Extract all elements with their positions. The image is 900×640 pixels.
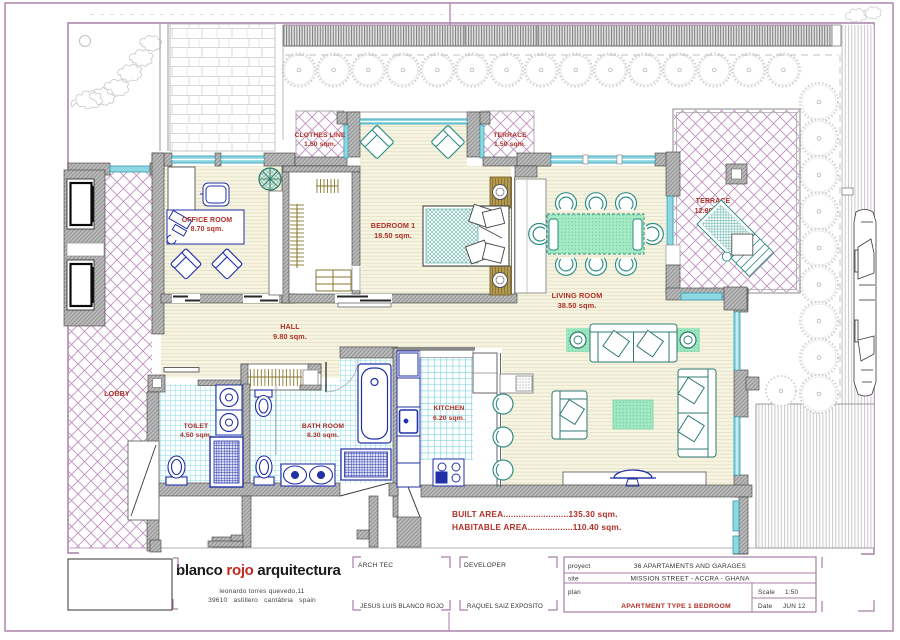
svg-text:BATH ROOM: BATH ROOM [302,423,345,430]
svg-text:JUN 12: JUN 12 [783,603,806,610]
svg-text:9.80 sqm.: 9.80 sqm. [273,332,307,341]
svg-text:18.50 sqm.: 18.50 sqm. [374,231,412,240]
svg-text:1.50 sqm.: 1.50 sqm. [304,141,336,148]
svg-text:leonardo torres quevedo,11: leonardo torres quevedo,11 [219,588,304,595]
svg-text:LIVING ROOM: LIVING ROOM [552,291,603,300]
svg-text:RAQUEL SAIZ EXPOSITO: RAQUEL SAIZ EXPOSITO [467,603,543,610]
svg-text:CLOTHES LINE: CLOTHES LINE [294,132,345,139]
svg-text:8.30 sqm.: 8.30 sqm. [307,432,339,439]
svg-text:1.50 sqm.: 1.50 sqm. [494,141,526,148]
svg-text:Date: Date [758,603,773,610]
svg-text:Scale: Scale [758,589,775,596]
svg-text:4.50 sqm.: 4.50 sqm. [180,432,212,439]
svg-text:BEDROOM 1: BEDROOM 1 [371,221,415,230]
svg-text:BUILT AREA....................: BUILT AREA..........................135.… [452,509,618,519]
svg-text:OFFICE ROOM: OFFICE ROOM [182,217,233,224]
svg-text:plan: plan [568,589,581,596]
svg-text:38.50 sqm.: 38.50 sqm. [558,301,597,310]
svg-text:6.20 sqm.: 6.20 sqm. [433,415,465,422]
svg-text:JESUS LUIS BLANCO ROJO: JESUS LUIS BLANCO ROJO [360,603,444,610]
svg-text:proyect: proyect [568,563,590,570]
svg-text:TOILET: TOILET [184,423,209,430]
svg-text:39610 astillero cantábria: 39610 astillero cantábria spain [208,597,316,604]
svg-text:KITCHEN: KITCHEN [434,405,465,412]
svg-text:TERRACE: TERRACE [493,132,527,139]
svg-text:MISSION STREET - ACCRA - GHANA: MISSION STREET - ACCRA - GHANA [630,576,749,583]
svg-text:DEVELOPER: DEVELOPER [464,562,506,569]
svg-text:1:50: 1:50 [785,589,798,596]
svg-text:36 APARTAMENTS AND GARAGES: 36 APARTAMENTS AND GARAGES [634,563,747,570]
svg-text:blanco rojo arquitectura: blanco rojo arquitectura [176,562,341,579]
svg-text:HABITABLE AREA................: HABITABLE AREA..................110.40 s… [452,522,622,532]
svg-text:HALL: HALL [280,322,300,331]
svg-text:APARTMENT TYPE 1 BEDROOM: APARTMENT TYPE 1 BEDROOM [621,603,731,610]
svg-text:ARCH TEC: ARCH TEC [358,562,393,569]
svg-text:LOBBY: LOBBY [104,389,130,398]
svg-text:site: site [568,576,579,583]
svg-text:8.70 sqm.: 8.70 sqm. [191,226,224,233]
